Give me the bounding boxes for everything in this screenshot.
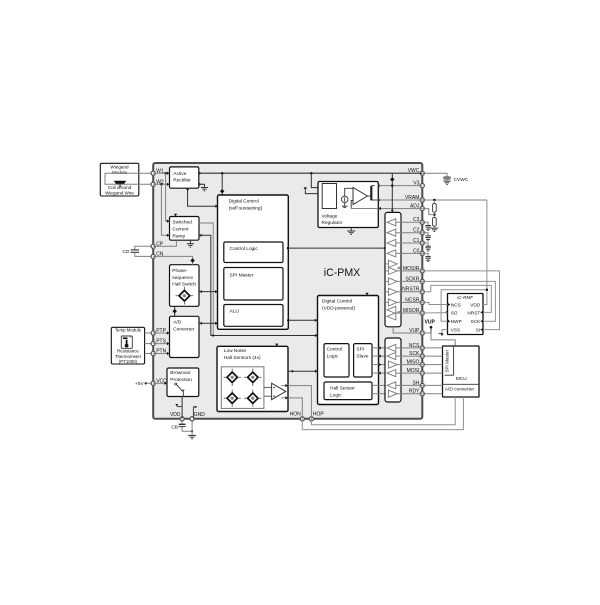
svg-text:Slave: Slave xyxy=(356,354,368,360)
svg-text:Wiegand Wire: Wiegand Wire xyxy=(105,190,134,195)
svg-text:CB: CB xyxy=(171,424,178,430)
svg-text:Switched: Switched xyxy=(172,220,192,226)
svg-text:(PT1000): (PT1000) xyxy=(119,359,138,364)
svg-text:SI: SI xyxy=(476,327,480,332)
svg-text:Low Noise: Low Noise xyxy=(224,348,247,354)
svg-text:Digital Control: Digital Control xyxy=(322,299,352,305)
svg-text:Control Logic: Control Logic xyxy=(230,246,259,252)
svg-text:NWP: NWP xyxy=(451,319,462,324)
svg-text:Wiegand: Wiegand xyxy=(110,164,129,169)
svg-text:Brownout: Brownout xyxy=(170,370,191,376)
svg-text:Current: Current xyxy=(172,227,189,233)
svg-text:Protection: Protection xyxy=(170,377,192,383)
svg-text:VDD: VDD xyxy=(470,302,481,307)
svg-text:Hall Sensors (4x): Hall Sensors (4x) xyxy=(224,355,261,361)
svg-text:Temp Module: Temp Module xyxy=(115,328,142,333)
svg-text:VSS: VSS xyxy=(451,327,460,332)
svg-text:iC-PMX: iC-PMX xyxy=(324,267,361,279)
svg-text:(VDD powered): (VDD powered) xyxy=(322,306,355,312)
svg-text:VUP: VUP xyxy=(425,320,436,326)
svg-text:Rectifier: Rectifier xyxy=(173,177,191,183)
svg-text:CVWC: CVWC xyxy=(454,177,469,183)
svg-text:+5V: +5V xyxy=(135,381,144,387)
svg-text:VDD: VDD xyxy=(170,412,181,418)
svg-text:NCS: NCS xyxy=(451,302,461,307)
svg-text:Digital Control: Digital Control xyxy=(229,199,259,205)
svg-text:A/D converter: A/D converter xyxy=(445,387,475,393)
svg-text:(self sustaining): (self sustaining) xyxy=(229,206,263,212)
svg-text:SO: SO xyxy=(451,310,458,315)
svg-text:Phase-: Phase- xyxy=(172,268,188,274)
svg-text:ALU: ALU xyxy=(230,309,240,315)
svg-text:A/D: A/D xyxy=(173,320,182,326)
svg-text:CD: CD xyxy=(122,249,129,255)
svg-text:Regulator: Regulator xyxy=(322,220,343,226)
svg-text:Ramp: Ramp xyxy=(172,233,185,239)
svg-text:Resistance: Resistance xyxy=(117,349,139,354)
svg-text:Logic: Logic xyxy=(330,392,342,398)
svg-text:Active: Active xyxy=(173,171,186,177)
svg-text:SCK: SCK xyxy=(471,319,482,324)
svg-text:SPI: SPI xyxy=(356,347,364,353)
svg-text:HON: HON xyxy=(290,412,302,418)
svg-text:NRST: NRST xyxy=(467,310,480,315)
svg-text:iC-RMF: iC-RMF xyxy=(457,295,474,300)
svg-text:sequence: sequence xyxy=(172,276,193,281)
svg-text:SPI Master: SPI Master xyxy=(445,349,450,372)
svg-text:Thermometer: Thermometer xyxy=(115,354,142,359)
svg-text:HOP: HOP xyxy=(313,412,325,418)
svg-text:Module: Module xyxy=(112,170,128,175)
svg-text:MCU: MCU xyxy=(456,376,467,382)
svg-text:Hall Switch: Hall Switch xyxy=(172,282,196,288)
svg-text:SPI Master: SPI Master xyxy=(230,273,254,279)
svg-text:Logic: Logic xyxy=(327,354,339,360)
svg-text:Control: Control xyxy=(327,347,342,353)
svg-text:Voltage: Voltage xyxy=(322,213,338,219)
svg-text:Hall Sensor: Hall Sensor xyxy=(330,386,355,392)
svg-text:Converter: Converter xyxy=(173,326,194,332)
svg-text:GND: GND xyxy=(194,412,206,418)
